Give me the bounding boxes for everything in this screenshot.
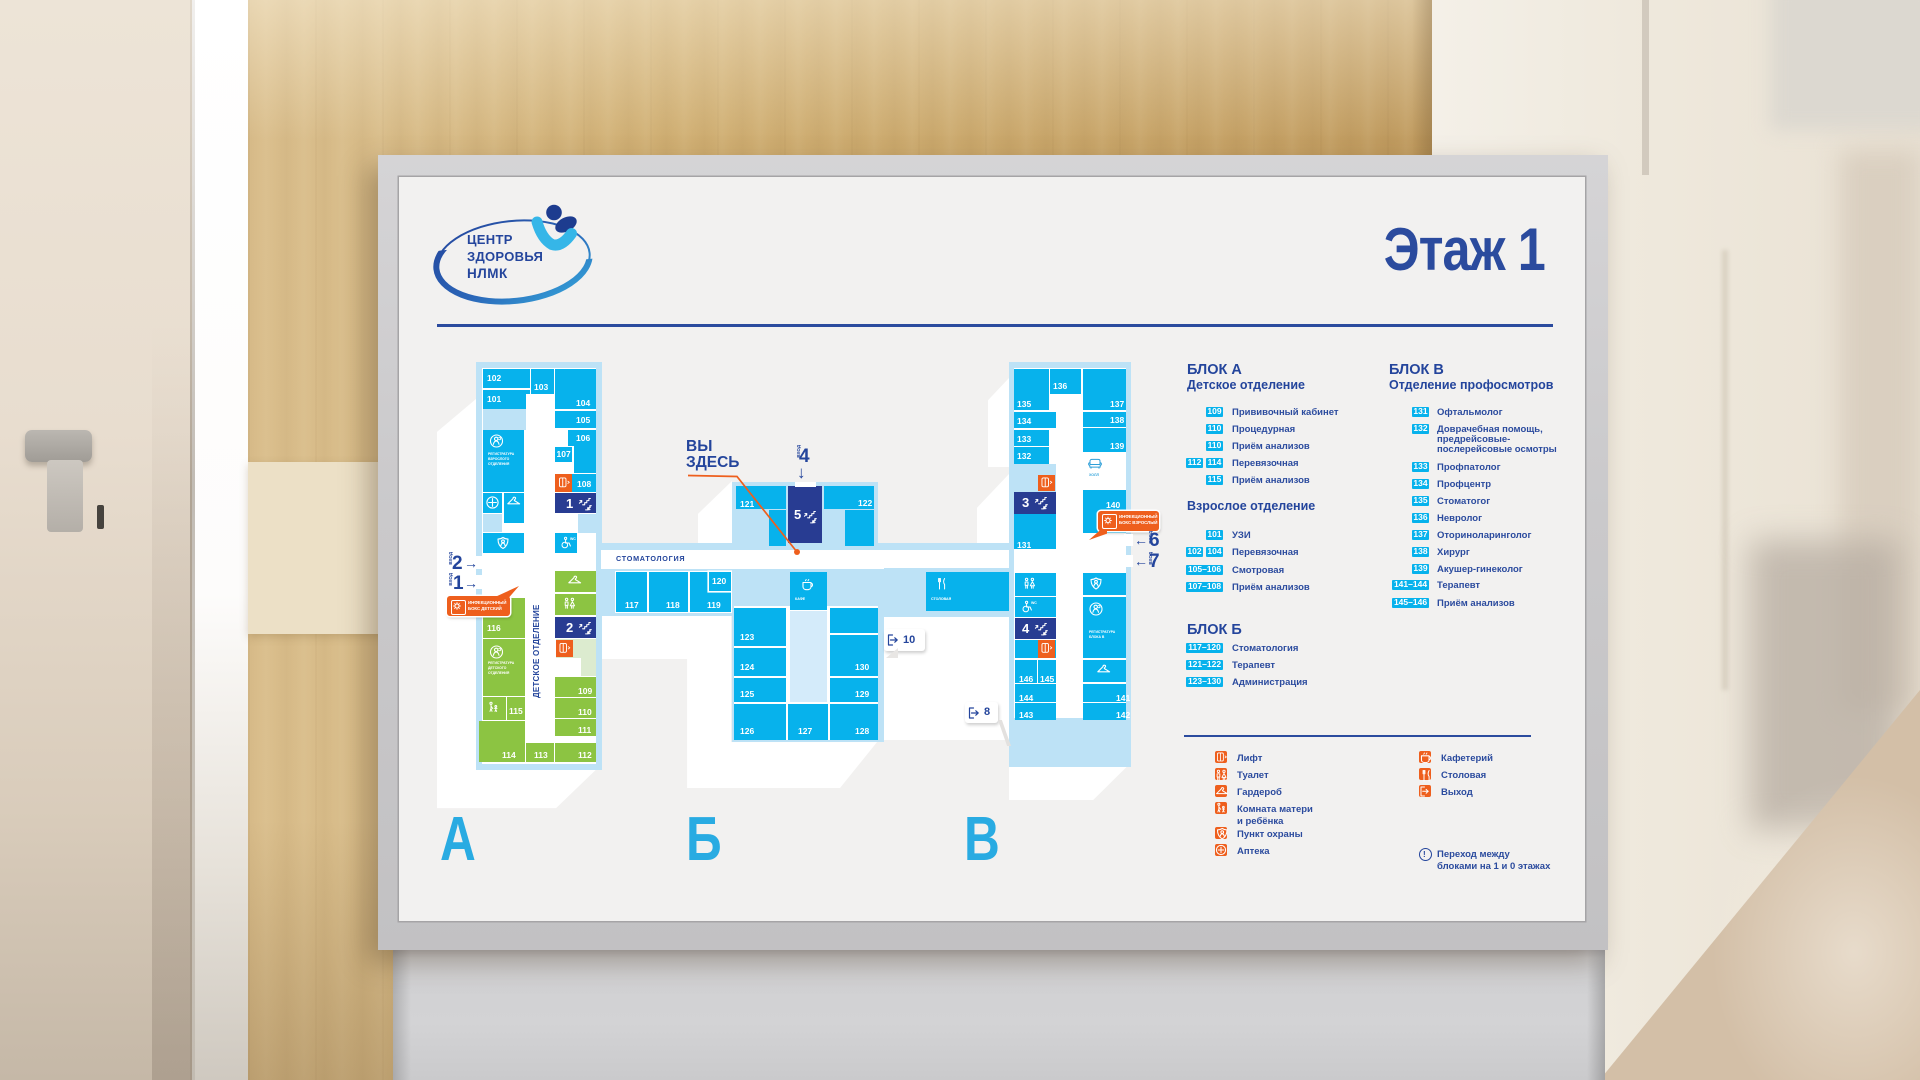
svg-text:WC: WC (570, 537, 576, 541)
svg-text:WC: WC (1031, 601, 1037, 605)
